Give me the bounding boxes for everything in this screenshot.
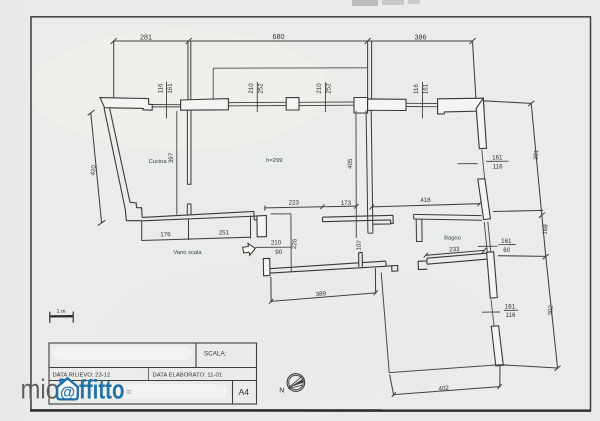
svg-text:116: 116	[413, 84, 420, 94]
svg-text:116: 116	[506, 312, 516, 319]
svg-text:1 m: 1 m	[57, 309, 66, 315]
svg-text:161: 161	[423, 83, 430, 94]
svg-text:420: 420	[90, 164, 98, 176]
svg-text:mio: mio	[21, 374, 60, 405]
svg-text:402: 402	[438, 385, 449, 393]
svg-text:Vano scala: Vano scala	[173, 250, 202, 256]
svg-text:107: 107	[355, 239, 363, 250]
svg-text:386: 386	[415, 33, 427, 42]
svg-text:223: 223	[289, 199, 300, 206]
svg-text:281: 281	[140, 32, 152, 41]
svg-text:210: 210	[248, 83, 255, 94]
svg-text:210: 210	[316, 83, 323, 94]
svg-text:168: 168	[542, 223, 550, 234]
svg-text:Cucina: Cucina	[149, 159, 168, 165]
svg-text:226: 226	[291, 238, 299, 249]
svg-text:116: 116	[157, 83, 164, 93]
svg-text:Bagno: Bagno	[444, 235, 461, 241]
svg-text:ffitto: ffitto	[79, 375, 125, 405]
svg-text:161: 161	[167, 83, 174, 94]
svg-text:405: 405	[347, 158, 354, 169]
svg-text:90: 90	[275, 249, 282, 256]
svg-text:SCALA:: SCALA:	[204, 350, 227, 357]
svg-text:210: 210	[271, 240, 282, 247]
svg-text:176: 176	[160, 231, 171, 238]
svg-text:302: 302	[547, 304, 555, 315]
svg-text:251: 251	[219, 229, 230, 236]
svg-text:173: 173	[341, 200, 352, 207]
svg-text:233: 233	[449, 246, 460, 254]
svg-text:680: 680	[273, 32, 285, 41]
svg-text:161: 161	[501, 238, 512, 245]
svg-text:389: 389	[315, 290, 326, 298]
svg-text:397: 397	[168, 152, 175, 163]
svg-text:252: 252	[258, 83, 265, 94]
svg-text:116: 116	[493, 164, 503, 171]
svg-text:N: N	[279, 388, 284, 395]
svg-text:60: 60	[503, 247, 510, 254]
svg-text:h=299: h=299	[266, 158, 282, 164]
svg-text:418: 418	[420, 197, 431, 204]
svg-text:DATA ELABORATO: 11-01: DATA ELABORATO: 11-01	[153, 373, 223, 379]
svg-text:@: @	[60, 385, 75, 402]
svg-text:161: 161	[505, 304, 516, 311]
svg-text:391: 391	[532, 149, 540, 160]
svg-text:252: 252	[326, 83, 333, 94]
svg-text:161: 161	[492, 155, 503, 162]
svg-text:A4: A4	[239, 387, 250, 397]
